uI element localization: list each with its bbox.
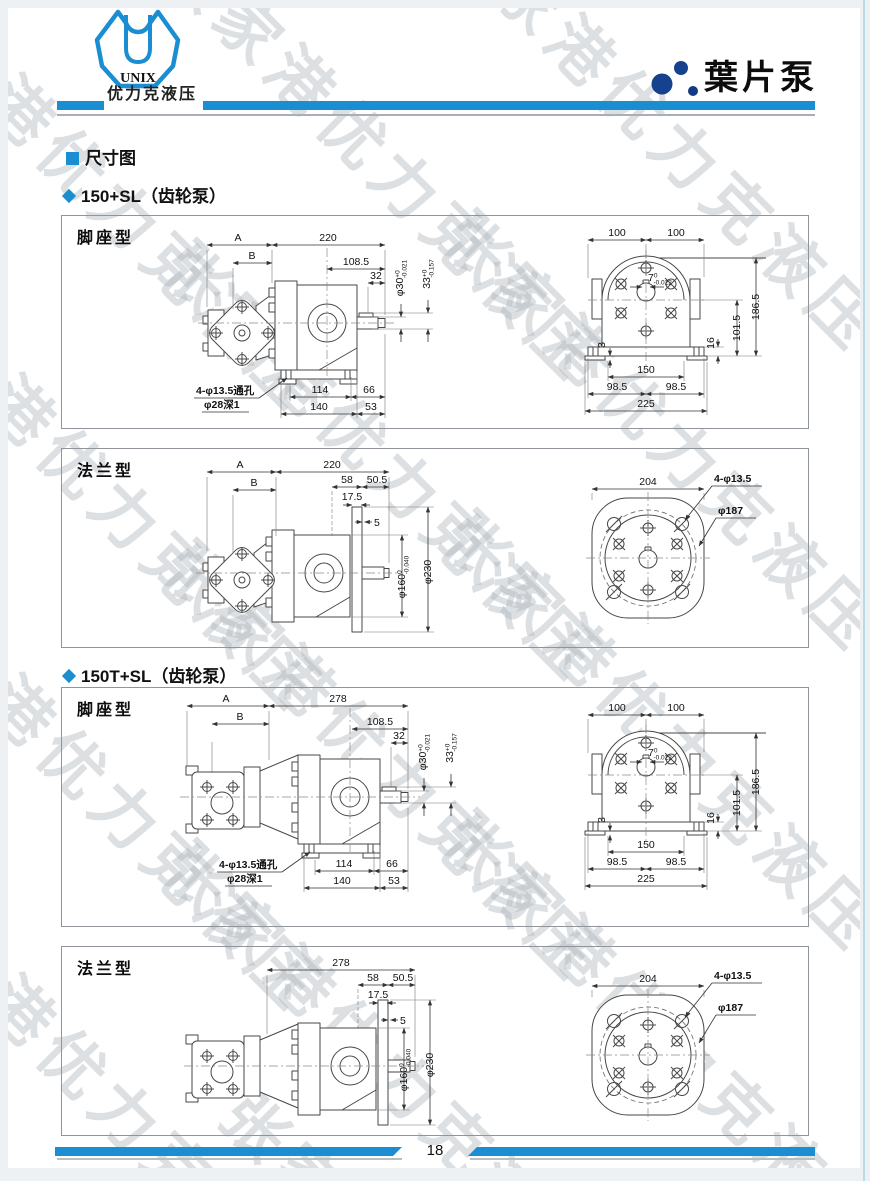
title-dots-icon: [648, 55, 700, 100]
header-bar-right: [203, 101, 815, 110]
page-edge-line: [863, 0, 865, 1181]
panel-type-label: 脚座型: [77, 224, 134, 248]
panel-150sl-foot: 脚座型: [61, 215, 809, 429]
footer-bar-left: [55, 1147, 402, 1156]
panel-type-label: 脚座型: [77, 696, 134, 720]
brand-tagline: 优力克液压: [107, 80, 197, 104]
footer-hairline-left: [57, 1158, 402, 1160]
panel-type-label: 法兰型: [77, 955, 134, 979]
panel-150sl-flange: 法兰型: [61, 448, 809, 648]
page-number: 18: [402, 1142, 468, 1159]
page-title: 葉片泵: [704, 50, 818, 99]
header-bar-left: [57, 101, 104, 110]
model-150sl-label: 150+SL（齿轮泵）: [81, 187, 226, 206]
diamond-bullet-icon: [62, 669, 76, 683]
panel-150tsl-flange: 法兰型: [61, 946, 809, 1136]
dimension-section-heading: 尺寸图: [66, 144, 136, 169]
footer-hairline-right: [470, 1158, 815, 1160]
model-150tsl-label: 150T+SL（齿轮泵）: [81, 667, 236, 686]
model-heading-150tsl: 150T+SL（齿轮泵）: [64, 662, 236, 687]
footer-bar-right: [468, 1147, 815, 1156]
diamond-bullet-icon: [62, 189, 76, 203]
panel-type-label: 法兰型: [77, 457, 134, 481]
model-heading-150sl: 150+SL（齿轮泵）: [64, 182, 226, 207]
header-hairline: [57, 114, 815, 116]
square-bullet-icon: [66, 152, 79, 165]
dimension-heading-label: 尺寸图: [85, 149, 136, 168]
panel-150tsl-foot: 脚座型: [61, 687, 809, 927]
